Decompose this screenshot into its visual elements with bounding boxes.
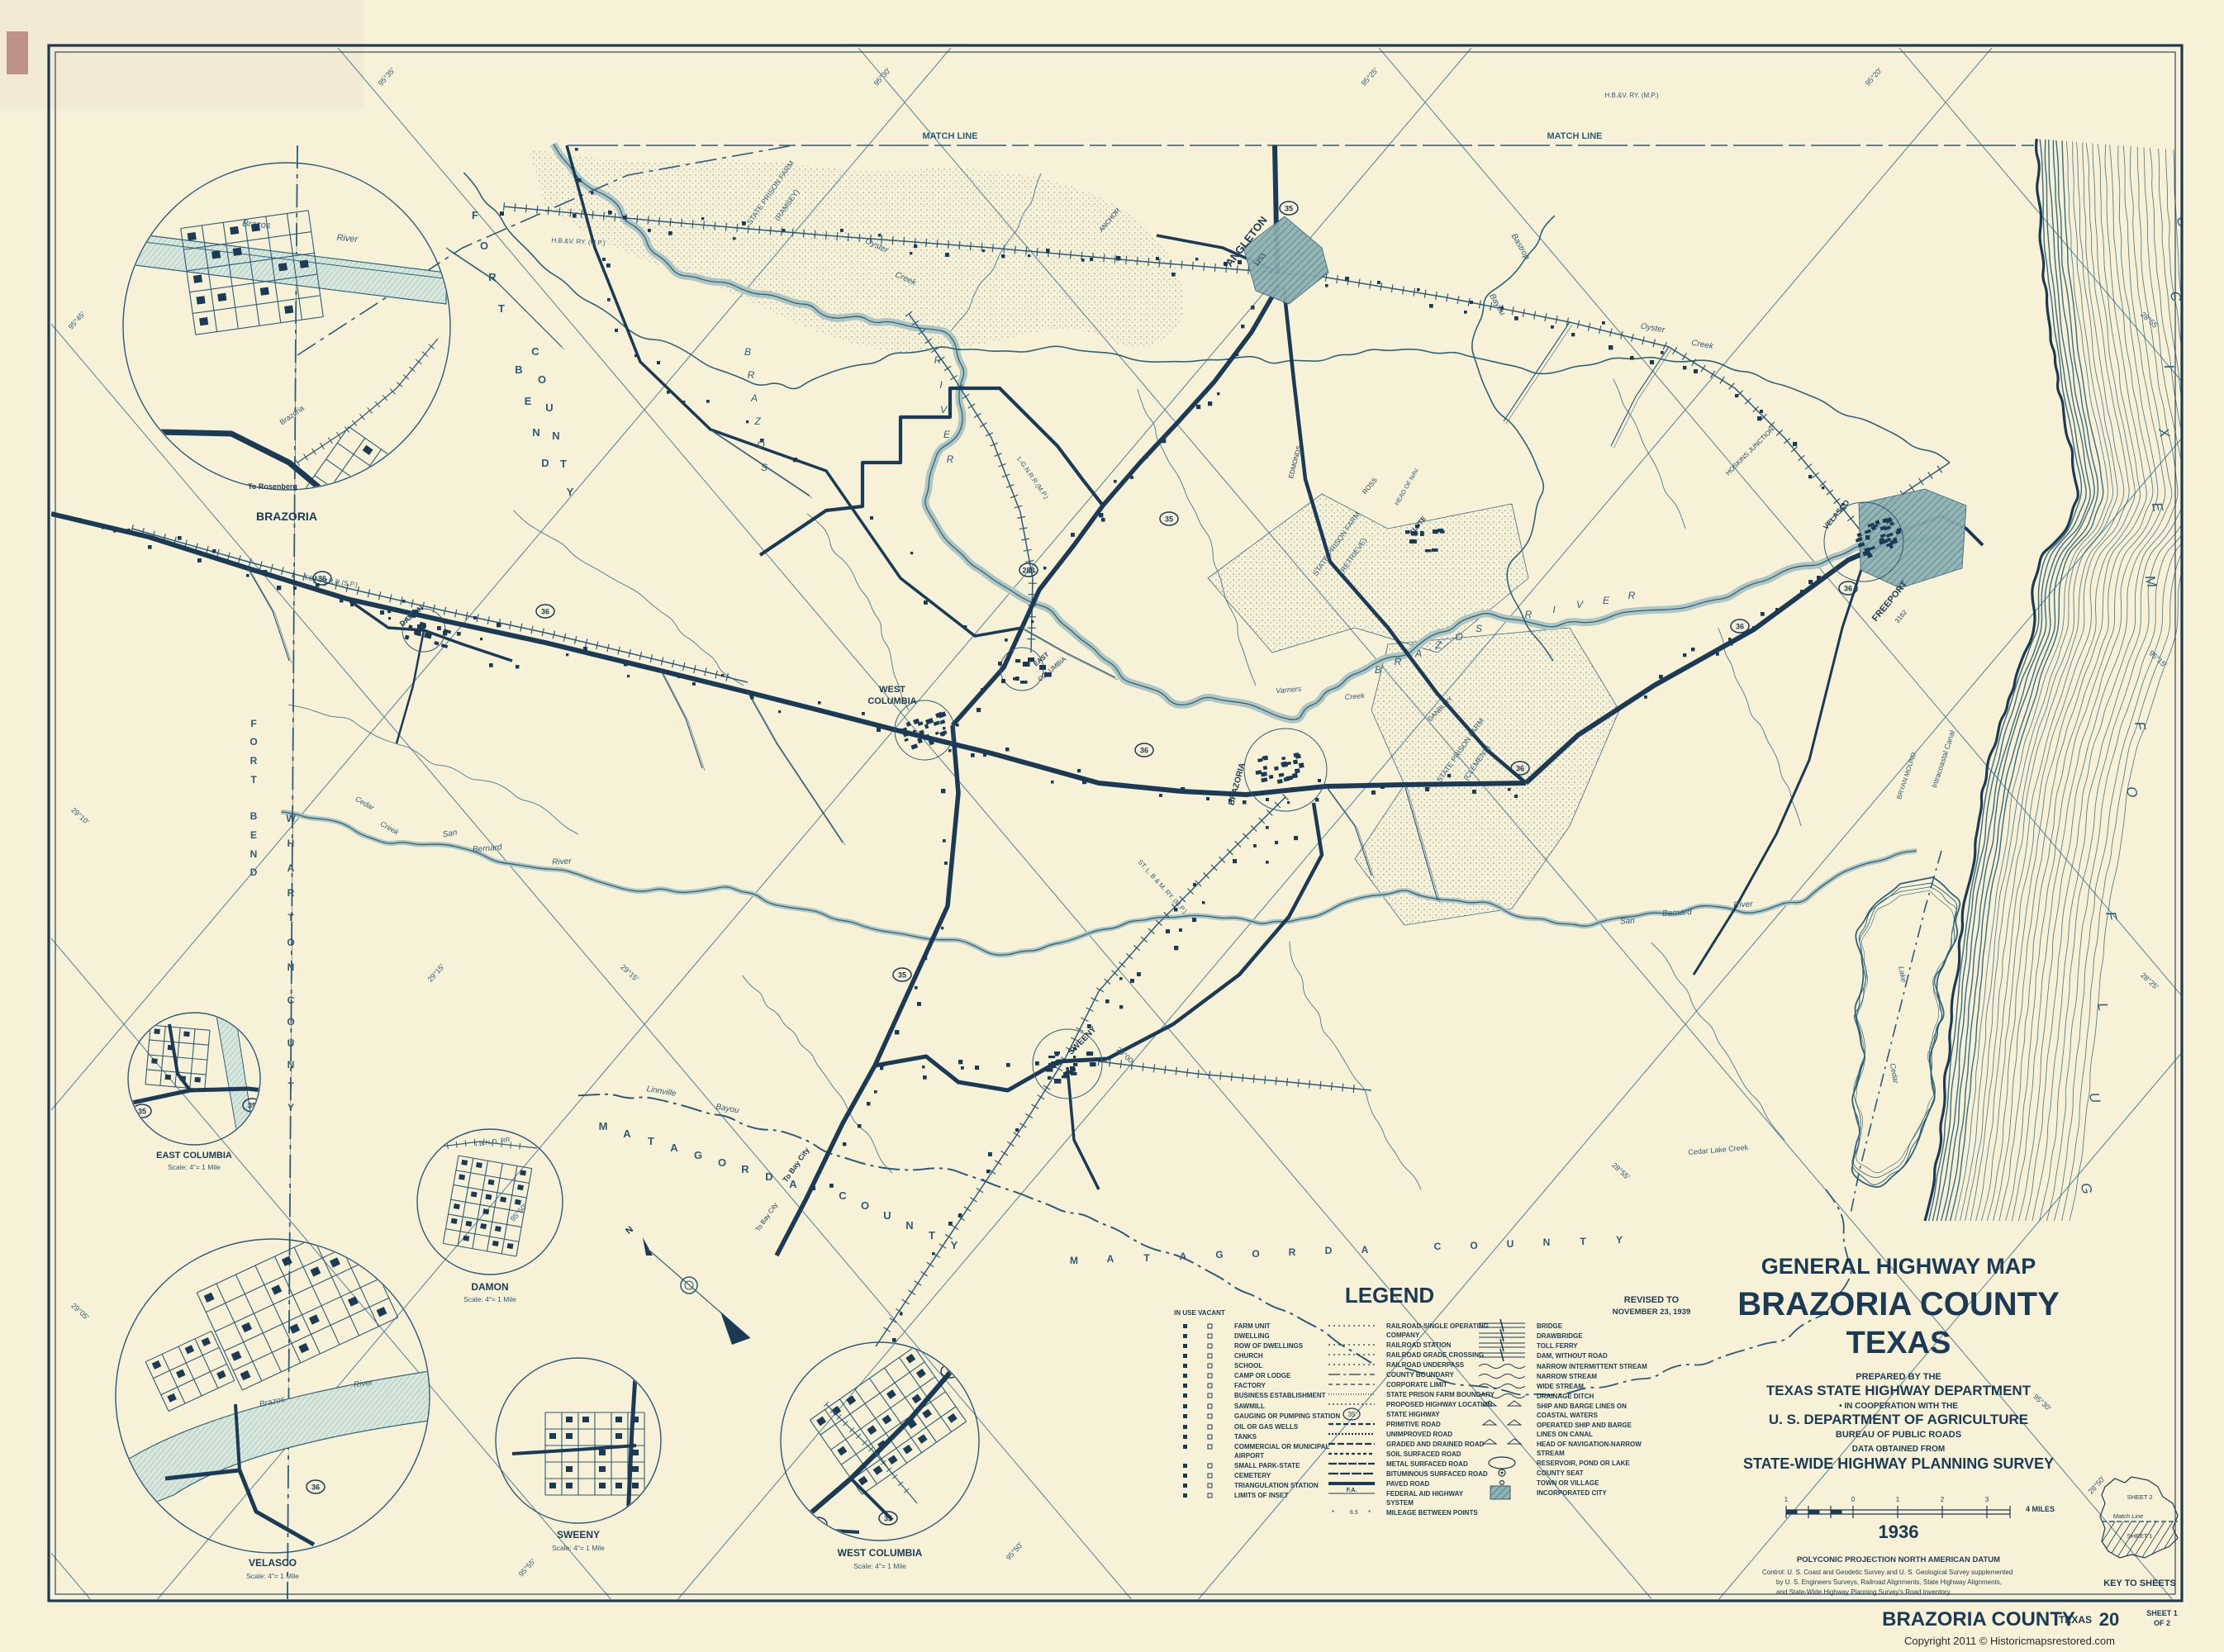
svg-text:1: 1 [1784, 1496, 1789, 1503]
svg-text:COMPANY: COMPANY [1386, 1332, 1420, 1339]
svg-text:O: O [1470, 1240, 1477, 1251]
svg-text:MATCH LINE: MATCH LINE [1547, 131, 1602, 141]
svg-text:O: O [1455, 631, 1462, 643]
svg-text:San: San [1620, 917, 1636, 927]
svg-text:3: 3 [1985, 1496, 1989, 1503]
svg-text:T: T [498, 302, 505, 315]
svg-text:A: A [750, 392, 758, 404]
svg-text:River: River [336, 233, 359, 244]
svg-text:R: R [741, 1163, 749, 1175]
svg-text:Creek: Creek [1344, 691, 1365, 701]
svg-text:SCHOOL: SCHOOL [1234, 1362, 1262, 1370]
svg-text:N: N [250, 848, 258, 860]
svg-text:SHEET 1: SHEET 1 [2146, 1609, 2178, 1617]
svg-text:D: D [1325, 1245, 1333, 1256]
svg-text:20: 20 [2099, 1609, 2119, 1630]
svg-text:NARROW STREAM: NARROW STREAM [1537, 1373, 1597, 1380]
svg-text:KEY TO SHEETS: KEY TO SHEETS [2103, 1578, 2176, 1588]
svg-text:FARM UNIT: FARM UNIT [1234, 1322, 1271, 1330]
svg-text:A: A [1361, 1244, 1369, 1256]
svg-text:O: O [480, 240, 488, 252]
svg-text:U: U [1507, 1238, 1514, 1250]
svg-text:Bernard: Bernard [1662, 908, 1693, 919]
svg-text:H: H [288, 838, 295, 849]
svg-text:BUREAU OF PUBLIC ROADS: BUREAU OF PUBLIC ROADS [1836, 1430, 1961, 1440]
svg-text:B: B [250, 810, 258, 822]
svg-text:D: D [250, 866, 258, 878]
svg-text:U: U [288, 1037, 295, 1049]
svg-text:COLUMBIA: COLUMBIA [867, 696, 916, 706]
svg-text:TANKS: TANKS [1234, 1433, 1257, 1441]
svg-text:WEST COLUMBIA: WEST COLUMBIA [838, 1547, 923, 1559]
svg-text:N: N [288, 1059, 295, 1070]
svg-text:Scale: 4"= 1 Mile: Scale: 4"= 1 Mile [552, 1544, 605, 1552]
svg-text:STATE-WIDE HIGHWAY PLANNING: STATE-WIDE HIGHWAY PLANNING SURVEY [1743, 1455, 2054, 1472]
svg-text:36: 36 [1844, 585, 1852, 593]
svg-text:BRIDGE: BRIDGE [1537, 1322, 1563, 1330]
svg-text:T: T [288, 912, 294, 923]
svg-text:R: R [488, 271, 497, 283]
svg-text:E: E [1603, 595, 1610, 606]
svg-text:B: B [515, 363, 522, 376]
svg-text:RAILROAD UNDERPASS: RAILROAD UNDERPASS [1386, 1361, 1465, 1369]
svg-text:MILEAGE BETWEEN POINTS: MILEAGE BETWEEN POINTS [1386, 1509, 1478, 1517]
svg-text:SHIP AND BARGE LINES ON: SHIP AND BARGE LINES ON [1537, 1403, 1627, 1410]
svg-text:COMMERCIAL OR MUNICIPAL: COMMERCIAL OR MUNICIPAL [1234, 1443, 1329, 1450]
svg-text:Z: Z [753, 415, 761, 427]
svg-text:Copyright 2011 © Historicmaps: Copyright 2011 © Historicmapsrestored.co… [1904, 1635, 2115, 1647]
svg-text:TRIANGULATION STATION: TRIANGULATION STATION [1234, 1482, 1319, 1489]
svg-text:SMALL PARK-STATE: SMALL PARK-STATE [1234, 1462, 1300, 1469]
svg-text:NOVEMBER 23, 1939: NOVEMBER 23, 1939 [1613, 1308, 1691, 1317]
svg-text:R: R [947, 453, 954, 465]
svg-text:T: T [1580, 1236, 1586, 1247]
svg-text:35: 35 [1348, 1411, 1356, 1418]
svg-text:SHEET 1: SHEET 1 [2127, 1532, 2152, 1540]
svg-text:T: T [1143, 1252, 1150, 1264]
svg-text:N: N [532, 426, 539, 439]
svg-text:• IN COOPERATION WITH THE: • IN COOPERATION WITH THE [1839, 1402, 1958, 1411]
svg-text:B: B [744, 346, 751, 358]
svg-text:Y: Y [951, 1239, 958, 1251]
svg-text:CORPORATE LIMIT: CORPORATE LIMIT [1386, 1381, 1447, 1389]
svg-text:O: O [718, 1156, 726, 1169]
svg-text:36: 36 [541, 608, 549, 616]
svg-text:A: A [288, 862, 295, 874]
svg-text:C: C [531, 345, 539, 358]
svg-text:Y: Y [567, 486, 574, 498]
svg-text:O: O [287, 1016, 294, 1028]
svg-text:EAST COLUMBIA: EAST COLUMBIA [156, 1151, 232, 1161]
svg-text:CAMP OR LODGE: CAMP OR LODGE [1234, 1372, 1291, 1379]
svg-text:T: T [929, 1229, 935, 1241]
svg-text:O: O [757, 439, 764, 450]
svg-text:GAUGING OR PUMPING STATION: GAUGING OR PUMPING STATION [1234, 1412, 1340, 1420]
svg-text:V: V [1576, 599, 1584, 610]
svg-text:A: A [1414, 648, 1422, 659]
svg-text:Y: Y [288, 1102, 294, 1113]
svg-text:METAL SURFACED ROAD: METAL SURFACED ROAD [1386, 1460, 1468, 1468]
svg-text:M: M [599, 1120, 608, 1132]
svg-text:N: N [905, 1219, 913, 1232]
svg-text:35: 35 [1285, 205, 1293, 213]
svg-text:E: E [525, 395, 532, 407]
svg-text:Scale: 4"= 1 Mile: Scale: 4"= 1 Mile [463, 1295, 516, 1303]
svg-text:TEXAS: TEXAS [2059, 1614, 2092, 1626]
svg-text:*: * [1332, 1509, 1334, 1517]
svg-text:R: R [1395, 656, 1402, 667]
svg-text:N: N [1543, 1237, 1551, 1248]
svg-text:PROPOSED HIGHWAY LOCATION: PROPOSED HIGHWAY LOCATION [1386, 1401, 1493, 1408]
svg-text:35: 35 [1165, 515, 1173, 524]
svg-text:BUSINESS ESTABLISHMENT: BUSINESS ESTABLISHMENT [1234, 1392, 1326, 1399]
svg-text:N: N [552, 430, 559, 442]
svg-text:36: 36 [1736, 623, 1744, 631]
svg-text:by U. S. Engineers Surveys, R: by U. S. Engineers Surveys, Railroad Ali… [1776, 1578, 2002, 1586]
svg-text:WIDE STREAM: WIDE STREAM [1537, 1383, 1584, 1390]
svg-text:2: 2 [1941, 1496, 1945, 1503]
svg-text:TEXAS: TEXAS [1846, 1326, 1951, 1360]
svg-text:36: 36 [311, 1483, 320, 1492]
svg-text:SAWMILL: SAWMILL [1234, 1403, 1265, 1410]
svg-text:RESERVOIR, POND OR LAKE: RESERVOIR, POND OR LAKE [1537, 1460, 1630, 1467]
svg-text:O: O [287, 937, 294, 948]
svg-text:G: G [1215, 1249, 1223, 1260]
svg-text:C: C [288, 995, 295, 1006]
svg-text:PRIMITIVE ROAD: PRIMITIVE ROAD [1386, 1421, 1441, 1428]
svg-text:To Rosenberg: To Rosenberg [248, 482, 297, 491]
svg-text:FEDERAL AID HIGHWAY: FEDERAL AID HIGHWAY [1386, 1490, 1464, 1498]
svg-text:BITUMINOUS SURFACED ROAD: BITUMINOUS SURFACED ROAD [1386, 1470, 1488, 1478]
svg-text:AIRPORT: AIRPORT [1234, 1452, 1264, 1460]
svg-text:R: R [250, 755, 258, 767]
svg-text:U: U [545, 401, 553, 414]
svg-text:UNIMPROVED ROAD: UNIMPROVED ROAD [1386, 1431, 1452, 1438]
svg-text:A: A [1180, 1251, 1187, 1262]
svg-text:River: River [1733, 900, 1754, 909]
svg-text:C: C [1434, 1241, 1442, 1252]
svg-text:VELASCO: VELASCO [249, 1557, 297, 1569]
svg-text:E: E [250, 829, 257, 841]
svg-text:A: A [623, 1127, 631, 1140]
svg-text:COUNTY SEAT: COUNTY SEAT [1537, 1469, 1584, 1477]
svg-text:Control: U. S. Coast and Geod: Control: U. S. Coast and Geodetic Survey… [1762, 1569, 2013, 1576]
svg-text:ROW OF DWELLINGS: ROW OF DWELLINGS [1234, 1342, 1304, 1350]
svg-text:CEMETERY: CEMETERY [1234, 1472, 1271, 1479]
svg-text:0: 0 [1851, 1496, 1856, 1503]
svg-text:PREPARED BY THE: PREPARED BY THE [1856, 1372, 1941, 1382]
svg-text:T: T [648, 1135, 654, 1147]
svg-text:Match Line: Match Line [2113, 1512, 2144, 1520]
svg-text:O: O [861, 1199, 869, 1212]
svg-text:T: T [250, 774, 257, 786]
svg-text:TOWN OR VILLAGE: TOWN OR VILLAGE [1537, 1479, 1599, 1487]
svg-text:6.5: 6.5 [1350, 1510, 1358, 1516]
svg-text:MATCH LINE: MATCH LINE [922, 131, 977, 141]
svg-text:GRADED AND DRAINED ROAD: GRADED AND DRAINED ROAD [1386, 1441, 1485, 1448]
svg-text:F: F [250, 718, 256, 729]
svg-text:OPERATED SHIP AND BARGE: OPERATED SHIP AND BARGE [1537, 1422, 1632, 1429]
svg-text:R: R [934, 354, 942, 366]
svg-text:RAILROAD-SINGLE OPERATING: RAILROAD-SINGLE OPERATING [1386, 1322, 1489, 1330]
svg-text:BRAZORIA COUNTY: BRAZORIA COUNTY [1737, 1286, 2060, 1322]
svg-text:STATE PRISON FARM BOUNDARY: STATE PRISON FARM BOUNDARY [1386, 1391, 1495, 1398]
svg-text:S: S [1476, 623, 1482, 634]
svg-text:Y: Y [1616, 1234, 1623, 1246]
svg-text:OF 2: OF 2 [2154, 1619, 2170, 1627]
svg-text:COUNTY BOUNDARY: COUNTY BOUNDARY [1386, 1371, 1454, 1379]
svg-text:288: 288 [1022, 567, 1034, 575]
svg-text:PAVED ROAD: PAVED ROAD [1386, 1480, 1429, 1488]
svg-text:Scale: 4"= 1 Mile: Scale: 4"= 1 Mile [168, 1163, 221, 1171]
svg-text:R: R [288, 887, 295, 899]
svg-text:35: 35 [884, 1515, 892, 1523]
svg-text:STREAM: STREAM [1537, 1450, 1565, 1457]
svg-text:M: M [1070, 1255, 1078, 1266]
svg-text:*: * [1368, 1509, 1371, 1517]
svg-text:T: T [560, 458, 567, 470]
svg-text:CHURCH: CHURCH [1234, 1352, 1263, 1360]
svg-text:SWEENY: SWEENY [557, 1529, 600, 1540]
svg-text:F.A.: F.A. [1347, 1488, 1357, 1493]
svg-text:W: W [286, 813, 296, 824]
svg-text:Scale: 4"= 1 Mile: Scale: 4"= 1 Mile [853, 1562, 906, 1570]
svg-text:INCORPORATED CITY: INCORPORATED CITY [1537, 1489, 1607, 1497]
svg-text:DAM, WITHOUT ROAD: DAM, WITHOUT ROAD [1537, 1352, 1608, 1360]
svg-text:R: R [748, 369, 755, 381]
svg-text:IN USE VACANT: IN USE VACANT [1174, 1309, 1225, 1317]
svg-text:GENERAL HIGHWAY MAP: GENERAL HIGHWAY MAP [1761, 1254, 2036, 1279]
svg-text:G: G [694, 1149, 702, 1161]
svg-text:R: R [1289, 1246, 1296, 1258]
svg-text:POLYCONIC PROJECTION NORTH: POLYCONIC PROJECTION NORTH AMERICAN DATU… [1797, 1555, 2000, 1564]
svg-text:R: R [1628, 590, 1636, 601]
svg-text:4 MILES: 4 MILES [2026, 1505, 2055, 1513]
svg-text:STATE HIGHWAY: STATE HIGHWAY [1386, 1411, 1440, 1418]
svg-text:E: E [943, 429, 951, 440]
svg-text:BRAZORIA COUNTY: BRAZORIA COUNTY [1882, 1608, 2075, 1631]
svg-text:A: A [670, 1142, 678, 1154]
svg-text:A: A [1107, 1253, 1114, 1265]
svg-text:Z: Z [1434, 639, 1442, 651]
svg-text:BRAZORIA: BRAZORIA [256, 510, 317, 523]
svg-text:O: O [538, 373, 546, 386]
svg-text:H.B.&V. RY. (M.P.): H.B.&V. RY. (M.P.) [1604, 92, 1658, 99]
svg-text:REVISED TO: REVISED TO [1624, 1295, 1680, 1305]
svg-text:SYSTEM: SYSTEM [1386, 1499, 1414, 1507]
svg-text:and State-Wide Highway Plann: and State-Wide Highway Planning Survey's… [1776, 1588, 1951, 1596]
svg-text:DRAINAGE DITCH: DRAINAGE DITCH [1537, 1393, 1594, 1400]
svg-text:R: R [1525, 609, 1533, 620]
svg-text:N: N [288, 961, 295, 973]
svg-text:COASTAL WATERS: COASTAL WATERS [1537, 1412, 1598, 1419]
svg-text:DRAWBRIDGE: DRAWBRIDGE [1537, 1332, 1583, 1340]
svg-text:35: 35 [898, 971, 906, 980]
svg-text:OIL OR GAS WELLS: OIL OR GAS WELLS [1234, 1423, 1299, 1431]
svg-text:DAMON: DAMON [471, 1281, 508, 1293]
svg-text:SOIL SURFACED ROAD: SOIL SURFACED ROAD [1386, 1450, 1461, 1458]
svg-text:SHEET 2: SHEET 2 [2127, 1493, 2152, 1501]
svg-text:V: V [940, 404, 948, 415]
svg-text:S: S [761, 462, 767, 473]
svg-text:Scale: 4"= 1 Mile: Scale: 4"= 1 Mile [246, 1572, 299, 1580]
svg-text:B: B [1375, 664, 1381, 676]
svg-text:RAILROAD GRADE CROSSING: RAILROAD GRADE CROSSING [1386, 1351, 1484, 1359]
svg-text:T: T [288, 1080, 294, 1092]
svg-text:TOLL FERRY: TOLL FERRY [1537, 1342, 1578, 1350]
svg-text:1: 1 [1896, 1496, 1900, 1503]
svg-text:D: D [541, 457, 549, 469]
svg-text:River: River [552, 857, 573, 866]
svg-text:O: O [1252, 1248, 1259, 1260]
svg-text:DATA OBTAINED FROM: DATA OBTAINED FROM [1852, 1445, 1945, 1454]
svg-text:C: C [839, 1189, 847, 1202]
svg-text:TEXAS STATE HIGHWAY DEPARTM: TEXAS STATE HIGHWAY DEPARTMENT [1766, 1383, 2032, 1398]
svg-text:36: 36 [1140, 747, 1148, 755]
svg-text:DWELLING: DWELLING [1234, 1332, 1270, 1340]
svg-text:U. S. DEPARTMENT OF AGRICUL: U. S. DEPARTMENT OF AGRICULTURE [1769, 1412, 2028, 1427]
svg-text:LEGEND: LEGEND [1345, 1283, 1434, 1308]
svg-text:1936: 1936 [1879, 1521, 1919, 1542]
svg-text:F: F [472, 209, 478, 221]
svg-text:WEST: WEST [879, 685, 905, 695]
svg-text:HEAD OF NAVIGATION-NARROW: HEAD OF NAVIGATION-NARROW [1537, 1441, 1642, 1448]
svg-text:D: D [765, 1170, 772, 1183]
svg-text:LIMITS OF INSET: LIMITS OF INSET [1234, 1492, 1288, 1499]
svg-text:RAILROAD STATION: RAILROAD STATION [1386, 1341, 1452, 1349]
svg-text:36: 36 [1516, 765, 1524, 773]
svg-text:U: U [883, 1209, 891, 1222]
svg-text:LINES ON CANAL: LINES ON CANAL [1537, 1431, 1593, 1438]
svg-text:FACTORY: FACTORY [1234, 1382, 1266, 1389]
svg-text:NARROW INTERMITTENT STREAM: NARROW INTERMITTENT STREAM [1537, 1363, 1647, 1370]
svg-text:O: O [249, 736, 257, 748]
